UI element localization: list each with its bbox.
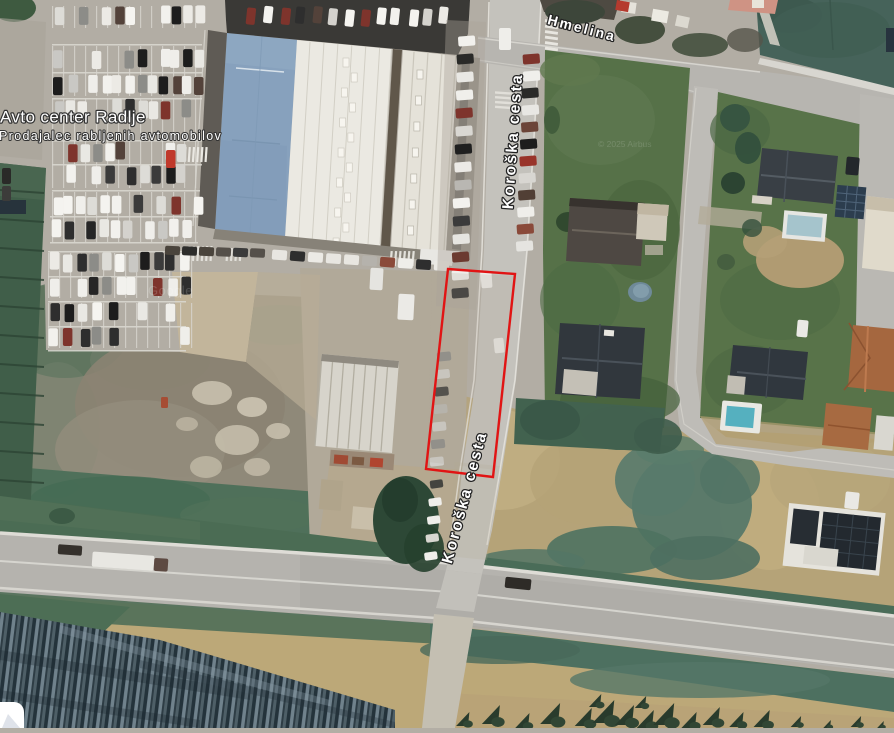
svg-text:© 2025 Airbus: © 2025 Airbus [598,139,652,149]
svg-text:Prodajalec rabljenih avtomobil: Prodajalec rabljenih avtomobilov [0,129,222,143]
svg-text:Google: Google [148,283,193,298]
svg-text:Avto center Radlje: Avto center Radlje [0,108,146,127]
